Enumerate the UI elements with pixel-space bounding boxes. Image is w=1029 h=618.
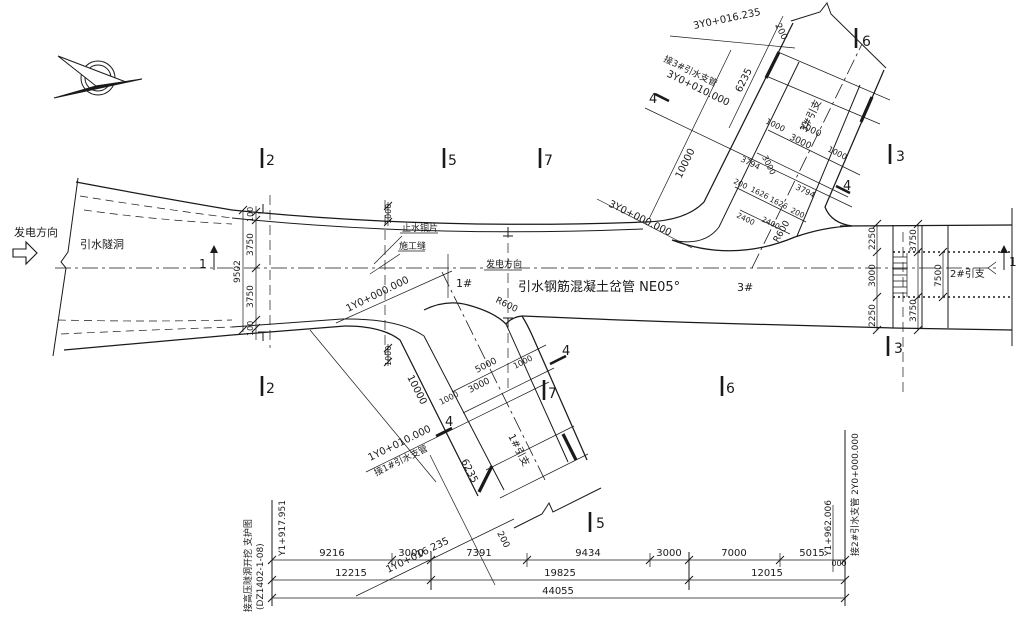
dim-100-left-bottom: 100 xyxy=(246,321,255,336)
station-1y0-000000: 1Y0+000.000 xyxy=(344,275,410,315)
tunnel-bottom-dashed-a xyxy=(58,320,232,321)
leader-3y0-016235 xyxy=(670,36,795,48)
branch-1-pipe-label: 1#引支 xyxy=(505,432,531,468)
dim-7000: 7000 xyxy=(721,548,746,559)
section-1-left: 1 xyxy=(199,257,207,271)
dim-5000-branch1: 5000 xyxy=(474,356,499,375)
dim-1000-branch1-b: 1000 xyxy=(512,354,534,371)
tunnel-top-wall xyxy=(76,182,232,210)
section-2-top: 2 xyxy=(266,153,275,169)
leader-lines xyxy=(336,36,996,596)
hatch-block xyxy=(893,253,907,297)
tunnel-left-edge xyxy=(53,178,78,356)
tunnel-top-dashed-a xyxy=(80,196,232,218)
dim-5015: 5015 xyxy=(799,548,824,559)
branch-dimension-lines xyxy=(310,16,860,585)
main-pipe-walls xyxy=(232,208,1012,346)
top-wall-left xyxy=(232,210,645,224)
dim-3000-chain-b: 3000 xyxy=(656,548,681,559)
section-7-top: 7 xyxy=(544,153,553,169)
dim-2250-right-top: 2250 xyxy=(868,227,878,250)
dim-12215: 12215 xyxy=(335,568,367,579)
section-6-top-right: 6 xyxy=(862,34,871,50)
dim-200-branch1: 200 xyxy=(494,530,511,550)
dim-3794-a: 3794 xyxy=(739,155,761,172)
ref-drawing-line1: 接高压隧洞开挖 支护图 xyxy=(242,519,254,612)
bottom-wall-right xyxy=(522,316,1012,330)
branch3-wall-bar-left xyxy=(766,52,779,78)
dim-7500-right: 7500 xyxy=(934,264,944,287)
branch-3-pipe xyxy=(645,3,890,268)
flow-direction-arrow-icon xyxy=(13,242,37,264)
bottom-dimension-chain xyxy=(268,430,849,606)
penstock-bifurcation-plan: 引水钢筋混凝土岔管 NE05° xyxy=(0,0,1029,618)
branch1-wall-bar-left xyxy=(479,466,492,492)
leader-waterstop xyxy=(374,236,402,264)
section-3-right-top: 3 xyxy=(896,149,905,165)
ref-drawing-line2: (DZ1402-1-08) xyxy=(256,543,266,610)
connect-branch2-label: 接2#引水支管 2Y0+000.000 xyxy=(849,433,861,556)
dim-3750-right-bottom: 3750 xyxy=(909,299,919,322)
flow-direction-left: 发电方向 xyxy=(14,225,58,239)
dim-2250-right-bottom: 2250 xyxy=(868,304,878,327)
tunnel-label: 引水隧洞 xyxy=(80,237,124,251)
dim-200-branch3: 200 xyxy=(772,22,789,42)
left-dimension-lines xyxy=(239,202,392,366)
dim-1000-mid-top: 1000 xyxy=(384,204,393,224)
branch1-left-outer xyxy=(345,326,478,496)
waterstop-label: 止水铜片 xyxy=(402,222,438,234)
dim-10000-branch3: 10000 xyxy=(674,147,698,180)
branch3-crotch-curve xyxy=(672,226,852,251)
dim-7391: 7391 xyxy=(466,548,491,559)
branch1-end-break xyxy=(514,488,601,528)
dim-9502-left: 9502 xyxy=(233,260,243,283)
section-4-branch1-right: 4 xyxy=(562,344,570,359)
section-2-bottom: 2 xyxy=(266,381,275,397)
leader-1y0-000000 xyxy=(336,271,452,323)
dim-3000-right: 3000 xyxy=(868,264,878,287)
section-7-bottom: 7 xyxy=(548,386,557,402)
dim-100-left-top: 100 xyxy=(246,207,255,222)
dim-9216: 9216 xyxy=(319,548,344,559)
dim-44055: 44055 xyxy=(542,586,574,597)
dim-9434: 9434 xyxy=(575,548,600,559)
flow-direction-center: 发电方向 xyxy=(486,258,522,270)
dim-1000-branch1-a: 1000 xyxy=(438,390,460,407)
branch3-end-break xyxy=(791,3,886,68)
construction-joint-label: 施工缝 xyxy=(399,240,426,252)
radius-r600-branch1: R600 xyxy=(494,296,520,315)
section-4-branch3-right: 4 xyxy=(843,179,851,194)
dim-000-right: 000 xyxy=(831,559,846,568)
dim-200-bif-a: 200 xyxy=(732,177,749,191)
drawing-sheet: 引水钢筋混凝土岔管 NE05° xyxy=(0,0,1029,618)
dim-3750-left-bottom: 3750 xyxy=(246,285,256,308)
section-5-top: 5 xyxy=(448,153,457,169)
dim-1626-a: 1626 xyxy=(749,185,770,202)
section-1-right: 1 xyxy=(1009,255,1017,269)
dim-12015: 12015 xyxy=(751,568,783,579)
elevation-right: Y1+962.006 xyxy=(824,500,834,557)
section-3-right-bottom: 3 xyxy=(894,341,903,357)
north-arrow-icon xyxy=(54,56,142,98)
dim-19825: 19825 xyxy=(544,568,576,579)
tunnel-bottom-dashed-b xyxy=(61,327,232,334)
section-5-bottom: 5 xyxy=(596,516,605,532)
branch-2-pipe-label: 2#引支 xyxy=(950,268,985,280)
tunnel-bottom-wall xyxy=(64,335,232,350)
dim-3000-chain-a: 3000 xyxy=(398,548,423,559)
station-3y0-000000: 3Y0+000.000 xyxy=(607,199,673,239)
junction-1-label: 1# xyxy=(456,277,472,290)
dim-3000-branch3: 3000 xyxy=(788,133,813,152)
dim-3750-left-top: 3750 xyxy=(246,233,256,256)
tunnel-top-dashed-b xyxy=(84,210,232,224)
dim-3000-branch1: 3000 xyxy=(467,376,492,395)
main-title: 引水钢筋混凝土岔管 NE05° xyxy=(518,279,680,295)
dim-1000-branch3-a: 1000 xyxy=(764,117,786,134)
section-4-branch3-left: 4 xyxy=(649,92,657,107)
dim-3000-bifurcation: 3000 xyxy=(760,154,777,176)
junction-3-label: 3# xyxy=(737,281,753,294)
annotations-layer: 发电方向引水隧洞引水钢筋混凝土岔管 NE05°发电方向止水铜片施工缝1#3#1#… xyxy=(14,7,1017,612)
elevation-left: Y1+917.951 xyxy=(278,500,288,557)
top-wall-right xyxy=(840,225,1012,226)
section-4-branch1-left: 4 xyxy=(445,415,453,430)
dim-3794-b: 3794 xyxy=(794,183,816,200)
dim-1000-mid-bottom: 1000 xyxy=(384,346,393,366)
dim-2400-a: 2400 xyxy=(735,211,756,228)
section-6-bottom: 6 xyxy=(726,381,735,397)
branch3-stiffener-a xyxy=(778,52,890,100)
dim-6235-branch1: 6235 xyxy=(458,457,479,485)
section-1-flags xyxy=(210,245,1008,270)
station-3y0-016235: 3Y0+016.235 xyxy=(692,7,761,32)
dim-3750-right-top: 3750 xyxy=(909,229,919,252)
